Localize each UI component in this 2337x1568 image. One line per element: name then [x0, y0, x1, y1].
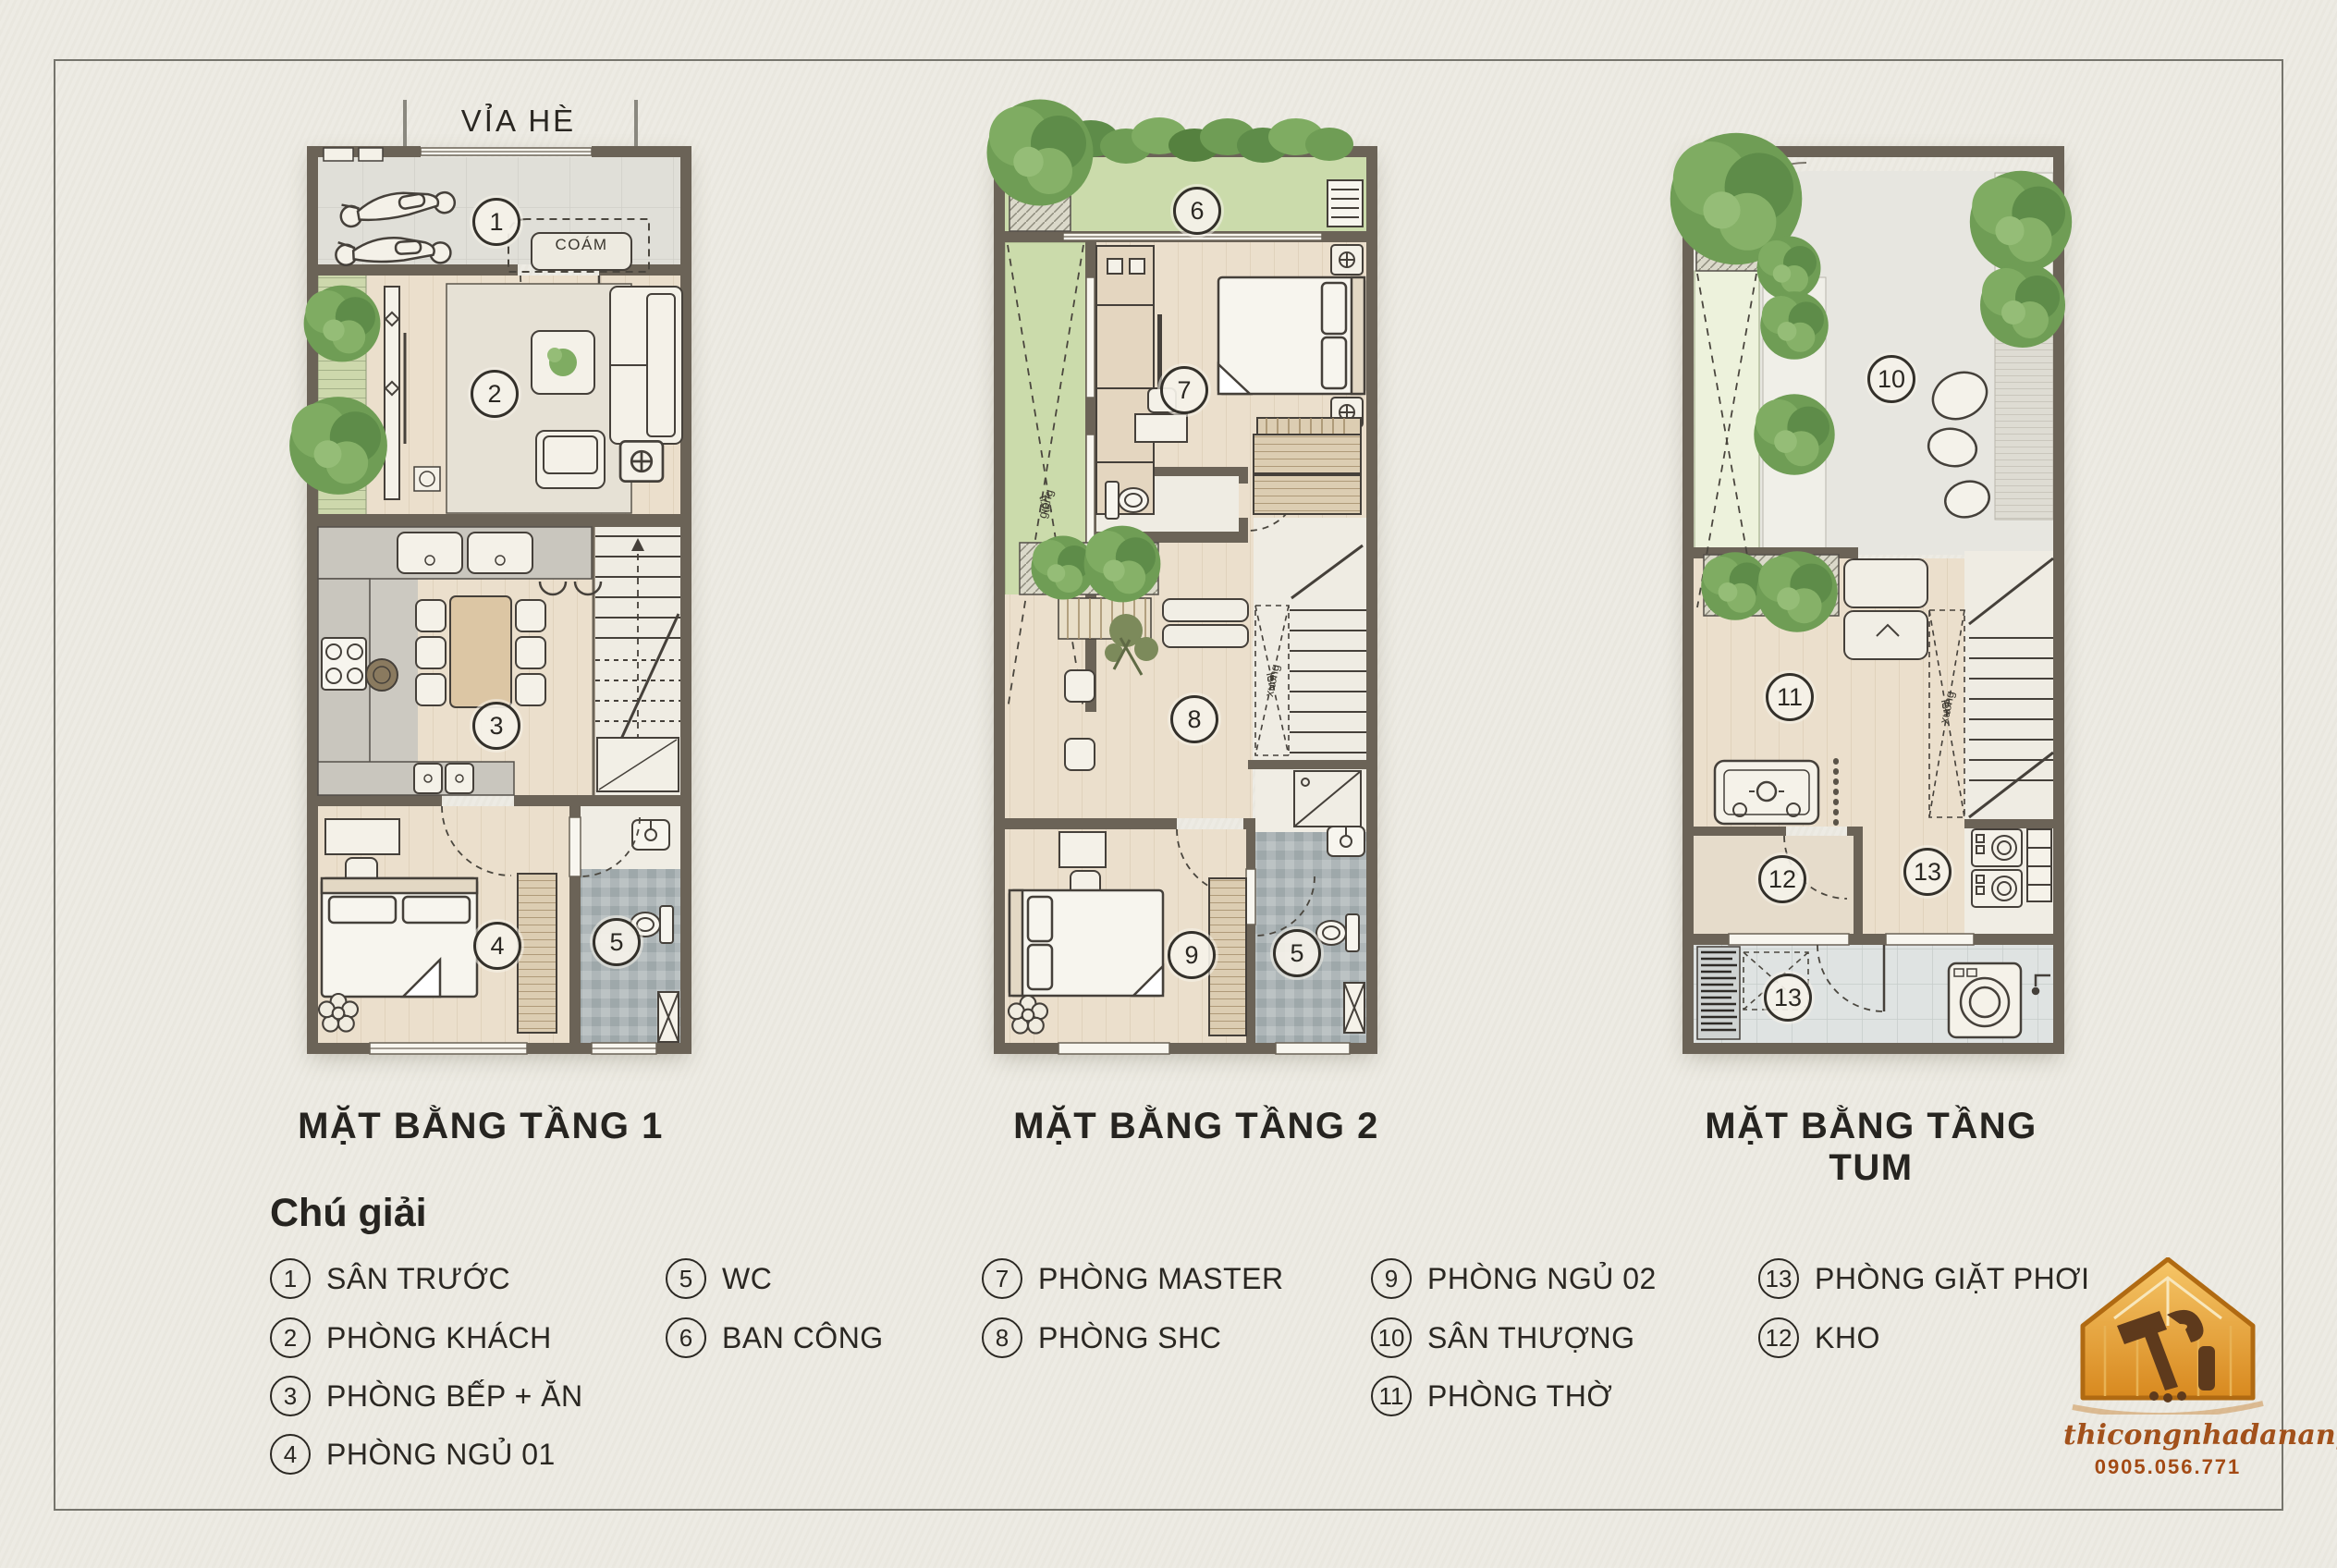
room-marker-4: 4 [473, 922, 521, 970]
bush-icon [1760, 291, 1829, 360]
room-marker-13b: 13 [1764, 974, 1812, 1022]
room-marker-1: 1 [472, 198, 520, 246]
logo-house-icon [2063, 1257, 2272, 1415]
legend-num: 2 [270, 1317, 311, 1358]
legend-label: PHÒNG GIẶT PHƠI [1815, 1262, 2090, 1296]
room-marker-12: 12 [1758, 855, 1806, 903]
dining-chair [516, 674, 545, 705]
legend-item: 1 SÂN TRƯỚC [270, 1257, 510, 1300]
legend-item: 8 PHÒNG SHC [982, 1317, 1221, 1359]
room-marker-7: 7 [1160, 366, 1208, 414]
legend-label: PHÒNG NGỦ 02 [1427, 1262, 1657, 1296]
sidewalk-label: VỈA HÈ [426, 104, 611, 139]
logo-website: thicongnhadanang.com [2063, 1419, 2272, 1452]
nightstand [1331, 245, 1363, 275]
legend-item: 11 PHÒNG THỜ [1371, 1375, 1612, 1417]
meter-boxes [324, 148, 383, 161]
legend-item: 5 WC [666, 1257, 772, 1300]
bush-icon [1756, 551, 1837, 631]
floor-ac-unit [414, 467, 440, 491]
tree-icon [987, 100, 1094, 206]
plan3-title: MẶT BẰNG TẦNG TUM [1668, 1106, 2074, 1189]
legend-num: 12 [1758, 1317, 1799, 1358]
bush-icon [1754, 394, 1834, 474]
bush-icon [1757, 237, 1821, 300]
legend-label: PHÒNG MASTER [1038, 1262, 1284, 1296]
company-logo: thicongnhadanang.com 0905.056.771 [2063, 1257, 2272, 1479]
legend-label: PHÒNG BẾP + ĂN [326, 1379, 583, 1414]
tree-icon [1980, 263, 2065, 348]
legend-item: 6 BAN CÔNG [666, 1317, 884, 1359]
side-table [620, 441, 663, 481]
room-marker-5b: 5 [1273, 929, 1321, 977]
room-marker-6: 6 [1173, 187, 1221, 235]
dining-chair [516, 600, 545, 631]
legend-num: 3 [270, 1376, 311, 1416]
kitchen-counter-bottom [318, 762, 514, 795]
room-marker-10: 10 [1867, 355, 1915, 403]
room-marker-8: 8 [1170, 695, 1218, 743]
legend-label: WC [722, 1262, 772, 1296]
legend-label: SÂN THƯỢNG [1427, 1321, 1635, 1355]
family-chair [1065, 670, 1095, 702]
dining-table [450, 596, 511, 707]
legend-label: PHÒNG SHC [1038, 1321, 1221, 1355]
legend-num: 1 [270, 1258, 311, 1299]
legend-num: 5 [666, 1258, 706, 1299]
plan1-title: MẶT BẰNG TẦNG 1 [277, 1106, 684, 1147]
coffee-table [532, 331, 594, 394]
plan2-title: MẶT BẰNG TẦNG 2 [993, 1106, 1400, 1147]
washing-machine [1949, 963, 2021, 1037]
family-chair [1065, 739, 1095, 770]
legend-num: 8 [982, 1317, 1022, 1358]
legend-item: 9 PHÒNG NGỦ 02 [1371, 1257, 1657, 1300]
legend-num: 10 [1371, 1317, 1412, 1358]
legend-label: BAN CÔNG [722, 1321, 884, 1355]
legend-num: 11 [1371, 1376, 1412, 1416]
legend-item: 2 PHÒNG KHÁCH [270, 1317, 552, 1359]
sofa [610, 287, 682, 444]
legend-label: PHÒNG THỜ [1427, 1379, 1612, 1414]
legend-heading: Chú giải [270, 1191, 427, 1236]
towel-cabinet [1344, 983, 1364, 1033]
legend-label: PHÒNG KHÁCH [326, 1321, 552, 1355]
armchair [536, 431, 605, 488]
master-bed [1218, 277, 1364, 394]
legend-item: 7 PHÒNG MASTER [982, 1257, 1284, 1300]
altar-table [1715, 761, 1818, 824]
tall-cabinet [2027, 829, 2051, 901]
round-pot [366, 659, 398, 691]
room-marker-3: 3 [472, 702, 520, 750]
legend-num: 7 [982, 1258, 1022, 1299]
master-wardrobe [1096, 246, 1154, 514]
dining-chair [416, 637, 446, 668]
legend-num: 13 [1758, 1258, 1799, 1299]
towel-cabinet [658, 992, 679, 1042]
hanging-clothes [1697, 947, 1740, 1039]
bed [322, 878, 477, 997]
ac-unit [1328, 180, 1363, 227]
kitchen-counter-top [318, 527, 592, 579]
room-marker-9: 9 [1168, 931, 1216, 979]
tree-icon [289, 397, 387, 495]
tree-icon [1970, 171, 2072, 273]
room-marker-11: 11 [1766, 673, 1814, 721]
legend-item: 3 PHÒNG BẾP + ĂN [270, 1375, 583, 1417]
legend-item: 10 SÂN THƯỢNG [1371, 1317, 1635, 1359]
wardrobe [518, 874, 557, 1033]
legend-num: 4 [270, 1434, 311, 1475]
room-marker-2: 2 [471, 370, 519, 418]
legend-item: 12 KHO [1758, 1317, 1880, 1359]
gravel-strip [1995, 325, 2053, 520]
sink [1328, 827, 1364, 856]
room-marker-5: 5 [593, 918, 641, 966]
legend-num: 9 [1371, 1258, 1412, 1299]
legend-num: 6 [666, 1317, 706, 1358]
floor-plan-sheet: VỈA HÈ COÁM 1 2 3 4 5 6 7 8 9 5 giếng tr… [0, 0, 2337, 1568]
bench-label: COÁM [533, 236, 630, 254]
legend-label: SÂN TRƯỚC [326, 1262, 510, 1296]
bush-icon [1084, 526, 1161, 603]
legend-label: KHO [1815, 1321, 1880, 1355]
room-marker-13a: 13 [1903, 848, 1952, 896]
cooktop [322, 638, 366, 690]
legend-item: 4 PHÒNG NGỦ 01 [270, 1433, 556, 1476]
tree-icon [304, 286, 381, 362]
dining-chair [416, 674, 446, 705]
plan-floor2 [987, 100, 1378, 1055]
wc2-entry-floor [1255, 769, 1366, 832]
legend-label: PHÒNG NGỦ 01 [326, 1438, 556, 1472]
dining-chair [416, 600, 446, 631]
dining-chair [516, 637, 545, 668]
logo-phone: 0905.056.771 [2063, 1455, 2272, 1479]
plan-floor-tum [1670, 133, 2073, 1054]
bed2 [1009, 890, 1163, 996]
legend-item: 13 PHÒNG GIẶT PHƠI [1758, 1257, 2090, 1300]
